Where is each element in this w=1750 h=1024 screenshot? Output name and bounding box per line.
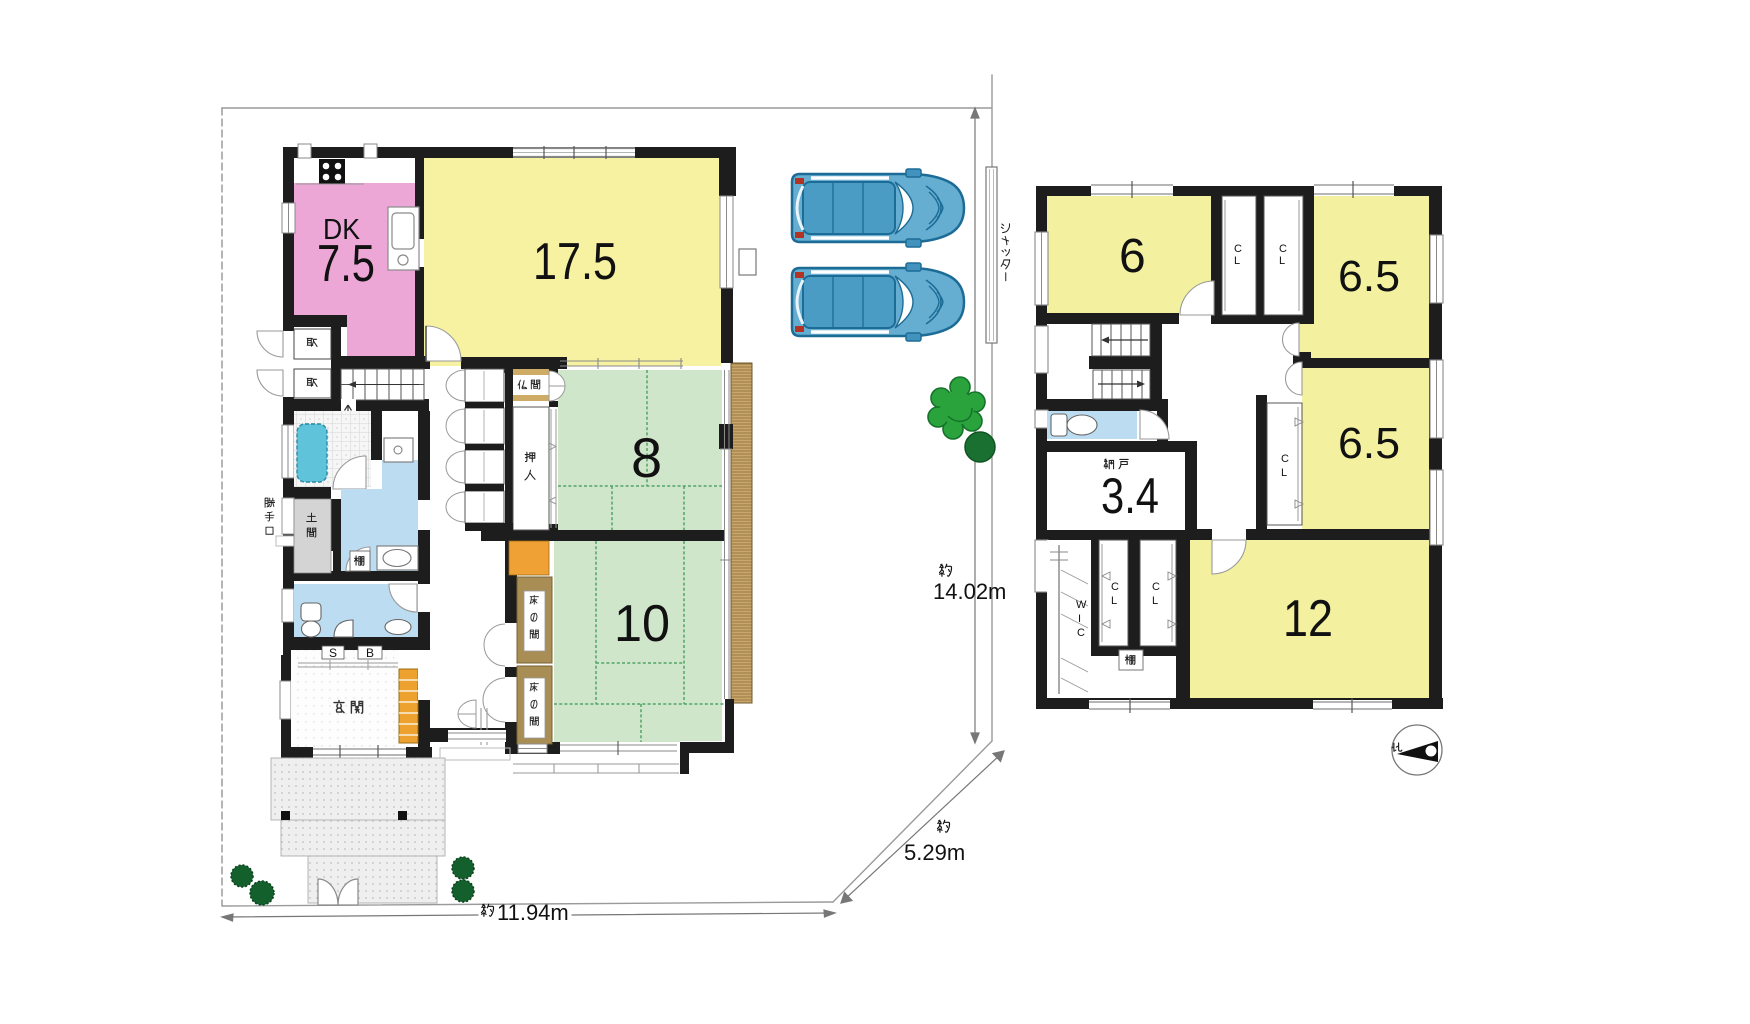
svg-text:L: L bbox=[1281, 467, 1287, 479]
svg-text:8: 8 bbox=[631, 426, 662, 489]
svg-text:L: L bbox=[1111, 595, 1117, 607]
svg-text:C: C bbox=[1279, 243, 1287, 255]
svg-text:S: S bbox=[329, 646, 337, 660]
svg-text:C: C bbox=[1281, 453, 1289, 465]
svg-text:3.4: 3.4 bbox=[1101, 468, 1159, 524]
svg-text:I: I bbox=[1078, 613, 1081, 625]
svg-text:6.5: 6.5 bbox=[1338, 252, 1400, 301]
svg-text:5.29m: 5.29m bbox=[904, 840, 965, 865]
svg-text:W: W bbox=[1076, 599, 1087, 611]
svg-text:L: L bbox=[1152, 595, 1158, 607]
svg-text:6.5: 6.5 bbox=[1338, 419, 1400, 468]
svg-text:L: L bbox=[1234, 255, 1240, 267]
svg-text:14.02m: 14.02m bbox=[933, 579, 1006, 604]
svg-text:11.94m: 11.94m bbox=[497, 900, 569, 925]
svg-text:C: C bbox=[1152, 581, 1160, 593]
svg-text:B: B bbox=[366, 646, 374, 660]
svg-text:L: L bbox=[1279, 255, 1285, 267]
svg-text:6: 6 bbox=[1119, 230, 1146, 283]
svg-text:7.5: 7.5 bbox=[317, 235, 375, 293]
svg-text:10: 10 bbox=[614, 595, 670, 653]
svg-text:C: C bbox=[1077, 627, 1085, 639]
svg-text:C: C bbox=[1111, 581, 1119, 593]
svg-text:C: C bbox=[1234, 243, 1242, 255]
svg-text:12: 12 bbox=[1283, 590, 1333, 648]
svg-text:17.5: 17.5 bbox=[533, 233, 617, 291]
